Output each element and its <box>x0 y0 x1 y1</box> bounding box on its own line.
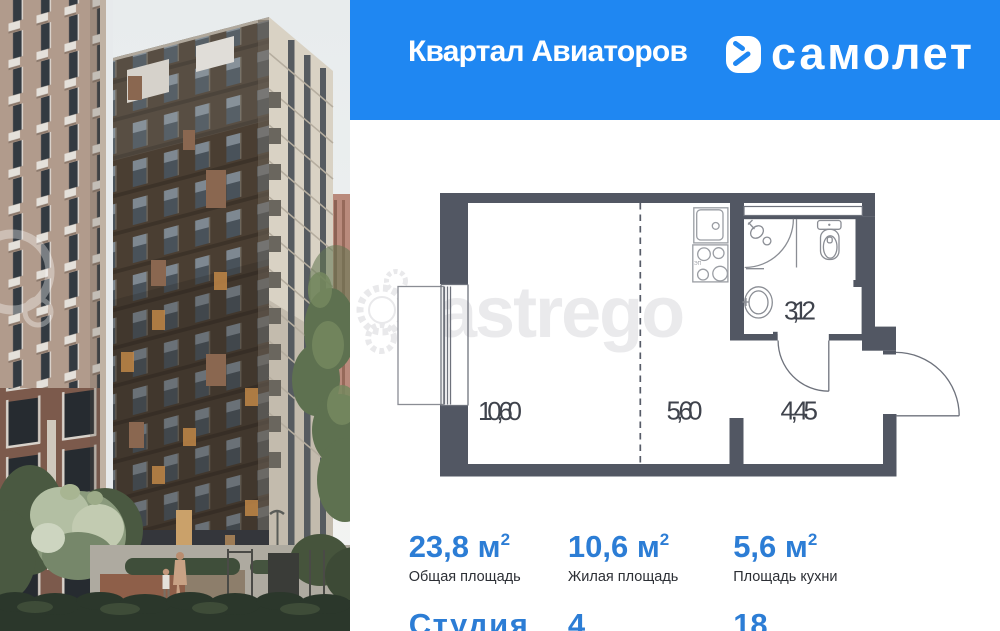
svg-text:3,12: 3,12 <box>784 296 816 326</box>
svg-text:5,60: 5,60 <box>667 396 703 426</box>
svg-text:astrego: astrego <box>437 273 683 353</box>
svg-text:10,60: 10,60 <box>478 396 522 426</box>
svg-text:ЭП: ЭП <box>694 261 702 267</box>
svg-text:4,45: 4,45 <box>781 396 819 426</box>
